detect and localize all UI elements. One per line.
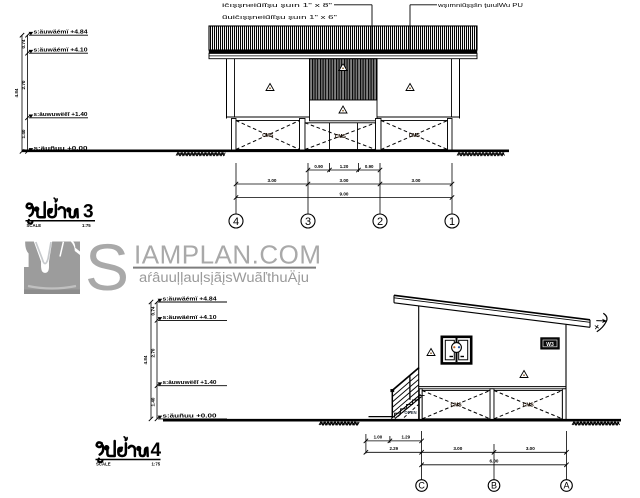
svg-text:s:äuwäémï +4.84: s:äuwäémï +4.84	[34, 30, 89, 36]
svg-text:CMS: CMS	[409, 133, 421, 139]
svg-text:aŕâuuļļauļsįãįsWuãľthuÄįu: aŕâuuļļauļsįãįsWuãľthuÄįu	[139, 270, 309, 285]
svg-text:4.84: 4.84	[143, 355, 148, 364]
svg-text:SCALE: SCALE	[96, 462, 111, 467]
svg-text:CMS: CMS	[335, 134, 347, 140]
svg-text:9.00: 9.00	[340, 191, 349, 196]
svg-text:0.74: 0.74	[21, 39, 26, 48]
svg-text:1.00: 1.00	[374, 435, 383, 440]
svg-text:IAMPLAN.COM: IAMPLAN.COM	[134, 240, 322, 270]
svg-text:1.40: 1.40	[21, 129, 26, 138]
svg-text:ičışşneiűiĩşu şuın 1" x 8": ičışşneiűiĩşu şuın 1" x 8"	[222, 3, 332, 9]
svg-text:4: 4	[233, 216, 239, 228]
svg-text:OPEN: OPEN	[404, 410, 416, 415]
svg-text:4: 4	[151, 440, 162, 461]
svg-text:CMS: CMS	[523, 402, 535, 408]
svg-text:SCALE: SCALE	[27, 223, 42, 228]
svg-text:s:äuñuu +0.00: s:äuñuu +0.00	[163, 413, 217, 419]
svg-text:1.29: 1.29	[402, 435, 411, 440]
svg-text:1.40: 1.40	[151, 397, 156, 406]
svg-text:0.90: 0.90	[365, 164, 374, 169]
svg-text:s:äuñuu +0.00: s:äuñuu +0.00	[34, 146, 88, 152]
svg-text:3: 3	[305, 216, 311, 228]
svg-text:3.00: 3.00	[340, 178, 349, 183]
svg-text:3.00: 3.00	[412, 178, 421, 183]
svg-text:s:äuwäémï +4.10: s:äuwäémï +4.10	[34, 48, 88, 54]
svg-text:ũuičışşneiűiĩşu şuın 1" x 6": ũuičışşneiűiĩşu şuın 1" x 6"	[222, 15, 337, 21]
svg-text:0.74: 0.74	[151, 306, 156, 315]
svg-text:1: 1	[449, 216, 455, 228]
svg-text:1.20: 1.20	[340, 164, 349, 169]
svg-text:A: A	[563, 481, 569, 491]
svg-text:s:äuwuwëêĭ +1.40: s:äuwuwëêĭ +1.40	[34, 112, 88, 118]
svg-text:1:75: 1:75	[152, 462, 161, 467]
svg-text:CMS: CMS	[451, 402, 463, 408]
svg-text:2.70: 2.70	[151, 348, 156, 357]
svg-text:3.00: 3.00	[268, 178, 277, 183]
svg-text:s:äuwuwëêĭ +1.40: s:äuwuwëêĭ +1.40	[163, 380, 217, 386]
svg-text:3: 3	[83, 202, 94, 223]
svg-text:W3: W3	[546, 342, 554, 348]
svg-text:CMS: CMS	[262, 133, 274, 139]
svg-text:2.29: 2.29	[390, 446, 399, 451]
svg-text:0.90: 0.90	[314, 164, 323, 169]
svg-text:B: B	[491, 481, 497, 491]
svg-text:C: C	[418, 481, 425, 491]
svg-text:s:äuwäémï +4.10: s:äuwäémï +4.10	[163, 315, 217, 321]
svg-text:S: S	[85, 230, 129, 304]
svg-text:2.70: 2.70	[21, 80, 26, 89]
svg-text:1:75: 1:75	[82, 223, 91, 228]
svg-text:s:äuwäémï +4.84: s:äuwäémï +4.84	[163, 296, 218, 302]
svg-text:wşımniũşşšn ţuıulWu PU: wşımniũşşšn ţuıulWu PU	[437, 3, 523, 9]
svg-text:3.00: 3.00	[526, 446, 535, 451]
svg-text:2: 2	[377, 216, 383, 228]
svg-text:3.00: 3.00	[453, 446, 462, 451]
svg-text:4.84: 4.84	[14, 88, 19, 97]
